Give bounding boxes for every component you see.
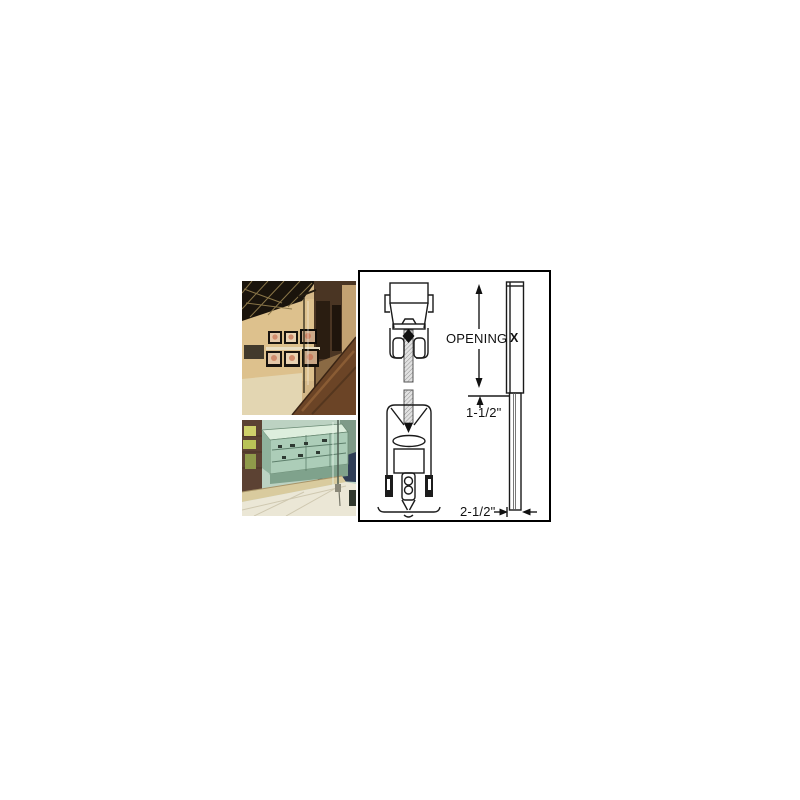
corner-clamp (349, 490, 356, 506)
shelf-items (245, 454, 256, 469)
shelf-items (244, 426, 256, 436)
product-collage: OPENING X 1-1/2" 2-1/2" (0, 0, 800, 800)
partition-shoe (335, 484, 341, 492)
opening-dimension-label: OPENING (446, 332, 507, 345)
storefront-photo (242, 281, 356, 415)
display-case-photo (242, 420, 356, 516)
spec-diagram-drawing (360, 272, 549, 520)
spec-diagram-panel: OPENING X 1-1/2" 2-1/2" (358, 270, 551, 522)
brick-wall (242, 420, 262, 494)
display-case-photo-art (242, 420, 356, 516)
tv-row-bottom (266, 349, 319, 367)
inset-dimension-label: 1-1/2" (466, 406, 501, 419)
glass-display-case (262, 424, 348, 484)
glass-panel-lower (404, 390, 413, 423)
interior-floor (242, 373, 302, 415)
counter (244, 345, 264, 359)
post-elevation-view (468, 282, 524, 510)
dark-doorway (332, 305, 341, 351)
shelf-items (243, 440, 256, 449)
leveling-base (378, 507, 440, 517)
storefront-photo-art (242, 281, 356, 415)
tv-row-top (268, 329, 317, 344)
width-dimension-label: 2-1/2" (460, 505, 495, 518)
x-marker-label: X (510, 332, 519, 345)
